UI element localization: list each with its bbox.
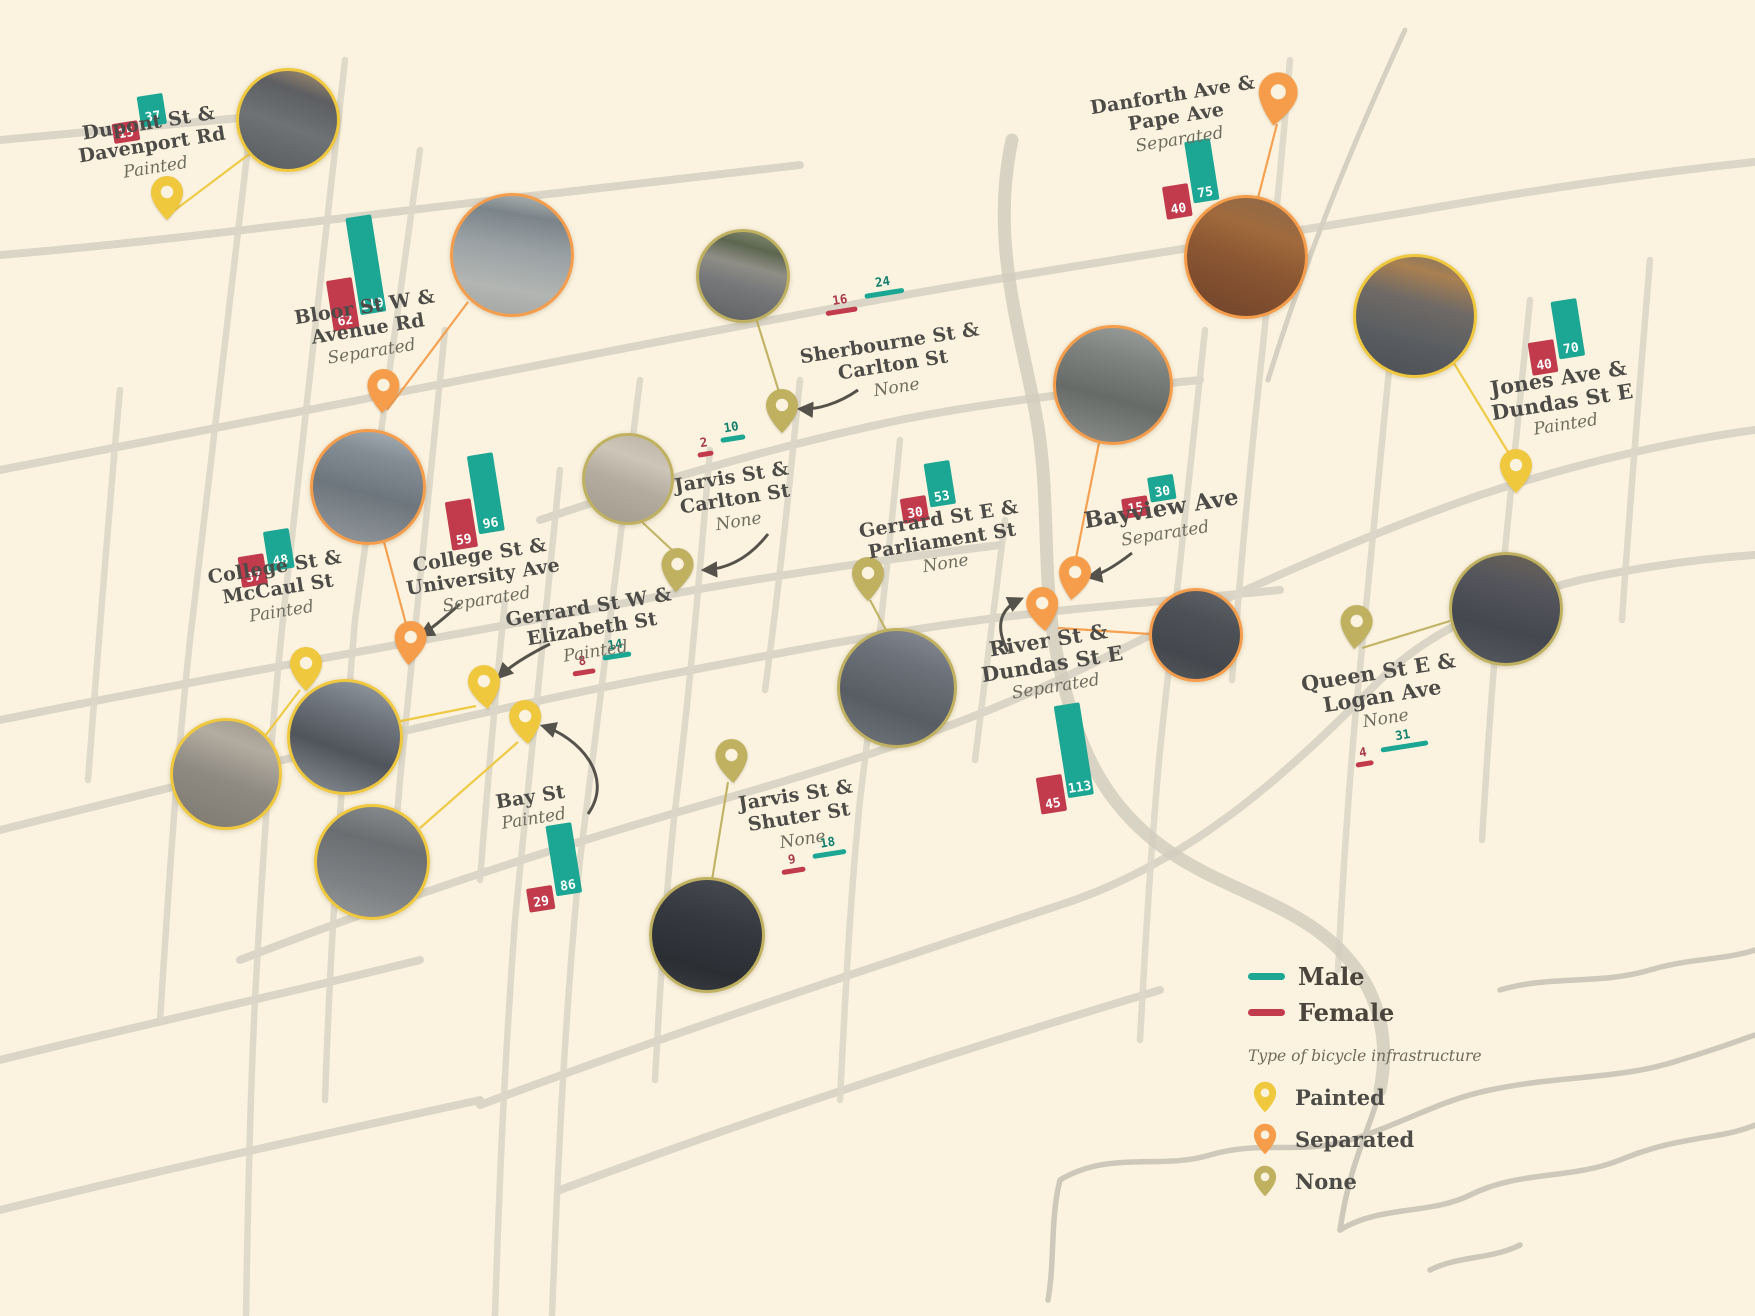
photo-danforth-pape[interactable] <box>1184 195 1308 319</box>
photo-jones-dundas[interactable] <box>1353 254 1477 378</box>
female-bar: 29 <box>526 885 555 913</box>
map-pin-icon <box>1499 448 1533 494</box>
legend-infrastructure-title: Type of bicycle infrastructure <box>1248 1047 1548 1065</box>
arrow-jarvis-carlton <box>704 534 768 570</box>
legend-type-none: None <box>1248 1165 1548 1197</box>
bars-gerrard-parliament: 30 53 <box>895 460 956 512</box>
male-color-swatch <box>1248 973 1285 980</box>
pin-jarvis-shuter[interactable] <box>713 737 750 789</box>
female-bar: 2 <box>695 434 714 458</box>
female-color-swatch <box>1248 1009 1285 1016</box>
bars-college-university: 59 96 <box>438 452 505 539</box>
toronto-bike-infrastructure-map: 15 37 Dupont St &Davenport RdPainted 62 … <box>0 0 1755 1316</box>
photo-jarvis-shuter[interactable] <box>649 877 765 993</box>
photo-gerrard-elizabeth[interactable] <box>287 679 403 795</box>
male-bar: 53 <box>924 460 957 508</box>
male-bar: 10 <box>718 417 746 443</box>
photo-college-mccaul[interactable] <box>170 718 282 830</box>
female-bar: 59 <box>445 498 478 550</box>
label-jones-dundas: Jones Ave &Dundas St EPainted <box>1418 345 1705 457</box>
legend-male-label: Male <box>1298 962 1365 991</box>
legend-type-label: Painted <box>1295 1085 1385 1110</box>
legend-type-painted: Painted <box>1248 1081 1548 1113</box>
bars-jarvis-carlton: 2 10 <box>695 428 748 458</box>
female-bar: 9 <box>779 850 806 875</box>
pin-bayview[interactable] <box>1054 553 1095 607</box>
separated-pin-icon <box>1253 1123 1277 1155</box>
legend-female-label: Female <box>1298 998 1394 1027</box>
map-pin-icon <box>659 546 696 594</box>
arrow-bayview <box>1089 553 1132 577</box>
photo-bayview[interactable] <box>1053 325 1173 445</box>
legend: Male Female Type of bicycle infrastructu… <box>1248 962 1548 1207</box>
female-bar: 45 <box>1036 774 1067 815</box>
pin-jarvis-carlton[interactable] <box>658 546 695 598</box>
pin-queen-logan[interactable] <box>1337 603 1375 656</box>
map-pin-icon <box>713 737 750 785</box>
bars-jones-dundas: 40 70 <box>1522 298 1585 364</box>
none-pin-icon <box>1253 1165 1277 1197</box>
photo-sherbourne-carlton[interactable] <box>696 229 790 323</box>
pin-college-university[interactable] <box>391 619 429 672</box>
male-bar: 24 <box>862 271 905 299</box>
connector-line-queen-logan <box>1362 621 1450 648</box>
bars-sherbourne-carlton: 16 24 <box>823 282 906 316</box>
legend-type-label: Separated <box>1295 1127 1414 1152</box>
legend-types: Painted Separated None <box>1248 1081 1548 1197</box>
legend-type-separated: Separated <box>1248 1123 1548 1155</box>
bars-queen-logan: 4 31 <box>1353 734 1431 767</box>
male-bar: 70 <box>1550 298 1585 359</box>
female-bar: 16 <box>823 289 858 316</box>
map-pin-icon <box>391 619 429 668</box>
bars-bay: 29 86 <box>517 822 582 901</box>
pin-bay[interactable] <box>506 697 545 750</box>
bars-river-dundas: 45 113 <box>1025 702 1094 802</box>
pin-dupont-davenport[interactable] <box>150 175 184 225</box>
connector-line-gerrard-elizabeth <box>396 706 476 722</box>
map-pin-icon <box>1054 553 1094 603</box>
photo-college-university[interactable] <box>310 429 426 545</box>
map-pin-icon <box>1337 603 1375 652</box>
legend-male-row: Male <box>1248 962 1548 991</box>
map-pin-icon <box>365 367 401 415</box>
female-bar: 40 <box>1162 183 1193 220</box>
legend-type-label: None <box>1295 1169 1357 1194</box>
label-sherbourne-carlton: Sherbourne St &Carlton StNone <box>750 311 1037 420</box>
pin-bloor-avenue[interactable] <box>365 367 402 419</box>
female-bar: 4 <box>1353 743 1374 768</box>
painted-pin-icon <box>1253 1081 1277 1113</box>
pin-jones-dundas[interactable] <box>1499 448 1533 498</box>
legend-female-row: Female <box>1248 998 1548 1027</box>
map-pin-icon <box>150 175 184 221</box>
map-pin-icon <box>506 697 545 746</box>
